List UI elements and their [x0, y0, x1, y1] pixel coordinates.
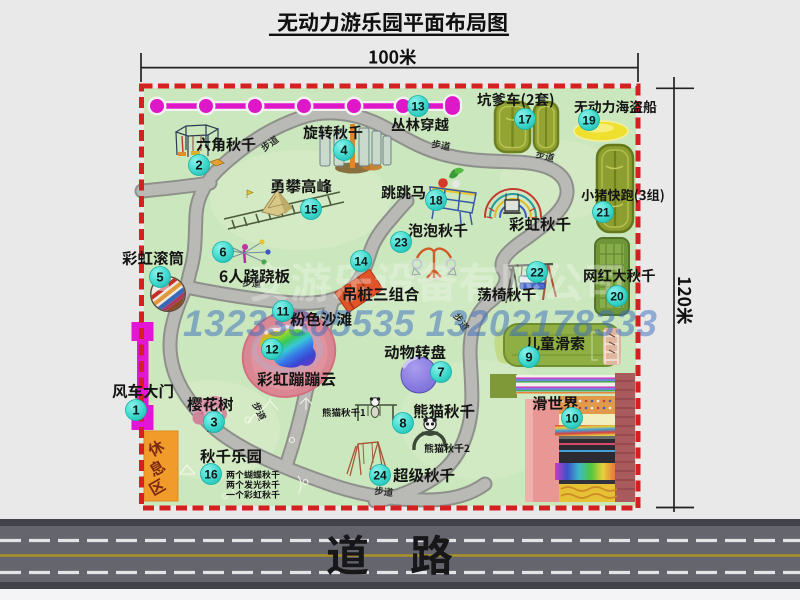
- svg-text:10: 10: [565, 412, 579, 426]
- svg-text:13233805535 13202178333: 13233805535 13202178333: [183, 303, 658, 344]
- svg-text:19: 19: [582, 114, 596, 128]
- svg-text:21: 21: [596, 206, 610, 220]
- svg-text:17: 17: [518, 113, 532, 127]
- svg-text:5: 5: [156, 270, 163, 285]
- svg-text:16: 16: [204, 468, 218, 482]
- svg-text:14: 14: [354, 255, 368, 269]
- svg-text:3: 3: [210, 415, 217, 430]
- svg-text:6: 6: [219, 245, 226, 260]
- svg-text:24: 24: [373, 469, 387, 483]
- svg-text:20: 20: [610, 290, 624, 304]
- svg-text:15: 15: [304, 203, 318, 217]
- svg-text:2: 2: [195, 158, 202, 173]
- svg-text:9: 9: [525, 350, 532, 365]
- svg-text:23: 23: [394, 236, 408, 250]
- svg-text:11: 11: [277, 305, 290, 319]
- svg-text:12: 12: [265, 343, 279, 357]
- svg-text:18: 18: [429, 194, 443, 208]
- svg-text:22: 22: [530, 266, 544, 280]
- svg-text:7: 7: [437, 365, 444, 380]
- svg-text:8: 8: [399, 416, 406, 431]
- svg-text:1: 1: [132, 403, 139, 418]
- svg-text:4: 4: [340, 143, 348, 158]
- svg-text:13: 13: [411, 100, 425, 114]
